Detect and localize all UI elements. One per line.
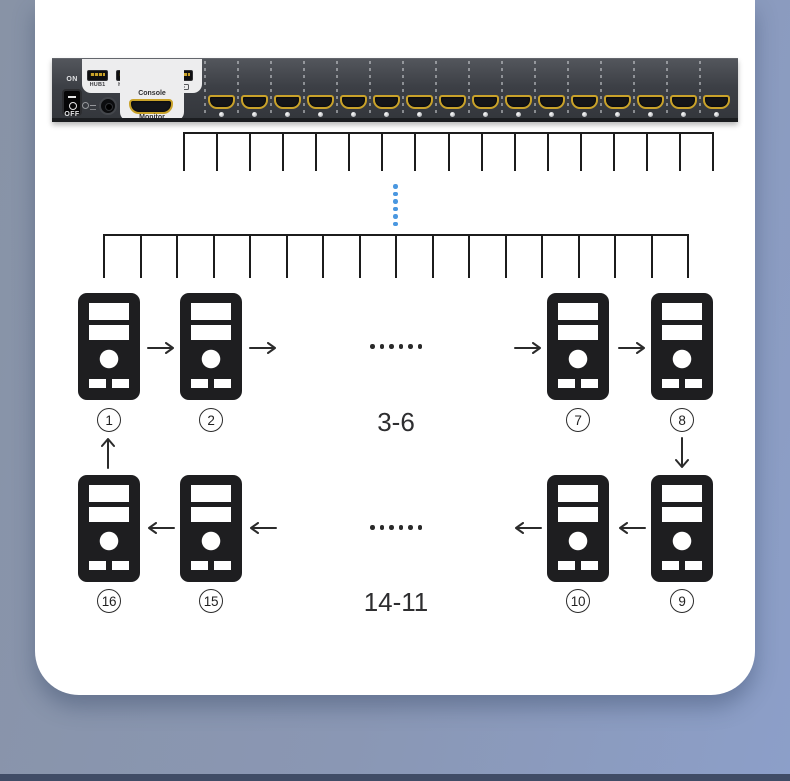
cable-line xyxy=(315,134,317,171)
hdmi-port-2 xyxy=(241,95,268,109)
cable-line xyxy=(468,236,470,278)
link-dot xyxy=(393,192,398,197)
port-led-6 xyxy=(384,112,389,117)
computer-tower-icon-16 xyxy=(78,475,140,582)
cable-line xyxy=(547,134,549,171)
port-separator xyxy=(402,61,404,117)
page: ON OFF HUB1 HUB2 Console Monitor 1 2 7 8 xyxy=(0,0,790,781)
port-separator xyxy=(237,61,239,117)
port-led-9 xyxy=(483,112,488,117)
port-separator xyxy=(534,61,536,117)
cable-line xyxy=(448,134,450,171)
ellipsis-dot xyxy=(399,344,404,349)
cable-line xyxy=(679,134,681,171)
ellipsis-dot xyxy=(418,525,423,530)
port-led-1 xyxy=(219,112,224,117)
port-separator xyxy=(336,61,338,117)
hdmi-port-7 xyxy=(406,95,433,109)
cable-line xyxy=(348,134,350,171)
port-led-4 xyxy=(318,112,323,117)
port-separator xyxy=(633,61,635,117)
port-led-16 xyxy=(714,112,719,117)
ellipsis-top-icon xyxy=(370,344,422,349)
port-separator xyxy=(270,61,272,117)
usb-port-hub1 xyxy=(87,70,108,81)
cable-line xyxy=(103,236,105,278)
computer-number-1: 1 xyxy=(97,408,121,432)
cable-line xyxy=(381,134,383,171)
computer-tower-icon-15 xyxy=(180,475,242,582)
cable-line xyxy=(216,134,218,171)
cable-line xyxy=(481,134,483,171)
hdmi-port-11 xyxy=(538,95,565,109)
computer-number-2: 2 xyxy=(199,408,223,432)
port-separator xyxy=(600,61,602,117)
hdmi-port-3 xyxy=(274,95,301,109)
console-label: Console xyxy=(120,90,184,97)
cable-line xyxy=(646,134,648,171)
port-separator xyxy=(369,61,371,117)
cable-line xyxy=(613,134,615,171)
link-dot xyxy=(393,214,398,219)
ellipsis-dot xyxy=(370,525,375,530)
hdmi-port-8 xyxy=(439,95,466,109)
hdmi-port-14 xyxy=(637,95,664,109)
footer-strip xyxy=(0,774,790,781)
power-off-label: OFF xyxy=(56,111,88,118)
cable-line xyxy=(414,134,416,171)
console-monitor-panel: Console Monitor xyxy=(120,59,184,121)
hdmi-port-13 xyxy=(604,95,631,109)
cable-bundle-top xyxy=(183,132,714,171)
computer-tower-icon-10 xyxy=(547,475,609,582)
hdmi-port-1 xyxy=(208,95,235,109)
arrow-right-icon xyxy=(514,342,542,354)
port-separator xyxy=(303,61,305,117)
hdmi-port-15 xyxy=(670,95,697,109)
computer-number-10: 10 xyxy=(566,589,590,613)
console-hdmi-port xyxy=(129,99,173,114)
ellipsis-dot xyxy=(380,344,385,349)
computer-number-7: 7 xyxy=(566,408,590,432)
cable-line xyxy=(432,236,434,278)
port-led-10 xyxy=(516,112,521,117)
ellipsis-dot xyxy=(389,525,394,530)
arrow-left-icon xyxy=(147,522,175,534)
cable-line xyxy=(578,236,580,278)
computer-number-16: 16 xyxy=(97,589,121,613)
arrow-left-icon xyxy=(618,522,646,534)
port-separator xyxy=(435,61,437,117)
cable-line xyxy=(687,236,689,278)
power-polarity-icon xyxy=(82,99,96,111)
port-led-15 xyxy=(681,112,686,117)
ellipsis-dot xyxy=(370,344,375,349)
port-led-14 xyxy=(648,112,653,117)
cable-bundle-bottom xyxy=(103,234,689,278)
arrow-up-icon xyxy=(101,437,115,469)
arrow-right-icon xyxy=(147,342,175,354)
port-separator xyxy=(699,61,701,117)
arrow-left-icon xyxy=(249,522,277,534)
usb-hub1-label: HUB1 xyxy=(84,82,111,88)
ellipsis-dot xyxy=(389,344,394,349)
port-separator xyxy=(501,61,503,117)
computer-number-9: 9 xyxy=(670,589,694,613)
computer-number-8: 8 xyxy=(670,408,694,432)
arrow-right-icon xyxy=(618,342,646,354)
hdmi-port-6 xyxy=(373,95,400,109)
port-separator xyxy=(468,61,470,117)
port-separator xyxy=(567,61,569,117)
link-dot xyxy=(393,207,398,212)
port-separator xyxy=(204,61,206,117)
cable-line xyxy=(580,134,582,171)
cable-line xyxy=(395,236,397,278)
cable-line xyxy=(541,236,543,278)
cable-line xyxy=(514,134,516,171)
hdmi-port-12 xyxy=(571,95,598,109)
arrow-left-icon xyxy=(514,522,542,534)
ellipsis-dot xyxy=(408,344,413,349)
top-range-label: 3-6 xyxy=(336,407,456,438)
port-led-7 xyxy=(417,112,422,117)
hdmi-port-10 xyxy=(505,95,532,109)
dc-power-jack xyxy=(99,97,117,115)
port-separator xyxy=(666,61,668,117)
cable-line xyxy=(282,134,284,171)
cable-line xyxy=(359,236,361,278)
port-led-8 xyxy=(450,112,455,117)
port-led-13 xyxy=(615,112,620,117)
link-dot xyxy=(393,222,398,227)
port-led-12 xyxy=(582,112,587,117)
port-led-2 xyxy=(252,112,257,117)
ellipsis-dot xyxy=(418,344,423,349)
hdmi-port-16 xyxy=(703,95,730,109)
cable-line xyxy=(176,236,178,278)
kvm-switch-rear-panel: ON OFF HUB1 HUB2 Console Monitor xyxy=(52,58,738,122)
computer-tower-icon-9 xyxy=(651,475,713,582)
computer-tower-icon-2 xyxy=(180,293,242,400)
cable-line xyxy=(322,236,324,278)
computer-tower-icon-8 xyxy=(651,293,713,400)
cable-line xyxy=(712,134,714,171)
port-led-3 xyxy=(285,112,290,117)
computer-number-15: 15 xyxy=(199,589,223,613)
cable-line xyxy=(183,134,185,171)
port-led-5 xyxy=(351,112,356,117)
ellipsis-dot xyxy=(380,525,385,530)
ellipsis-dot xyxy=(399,525,404,530)
hdmi-port-5 xyxy=(340,95,367,109)
cable-line xyxy=(249,134,251,171)
bottom-range-label: 14-11 xyxy=(336,587,456,618)
link-dot xyxy=(393,184,398,189)
hdmi-port-4 xyxy=(307,95,334,109)
hdmi-port-9 xyxy=(472,95,499,109)
cable-line xyxy=(614,236,616,278)
arrow-down-icon xyxy=(675,437,689,469)
panel-bottom-edge xyxy=(52,118,738,122)
cable-line xyxy=(286,236,288,278)
cable-line xyxy=(651,236,653,278)
arrow-right-icon xyxy=(249,342,277,354)
cable-line xyxy=(505,236,507,278)
dotted-link-icon xyxy=(393,184,398,226)
ellipsis-dot xyxy=(408,525,413,530)
link-dot xyxy=(393,199,398,204)
cable-line xyxy=(213,236,215,278)
cable-line xyxy=(140,236,142,278)
computer-tower-icon-7 xyxy=(547,293,609,400)
ellipsis-bottom-icon xyxy=(370,525,422,530)
computer-tower-icon-1 xyxy=(78,293,140,400)
port-led-11 xyxy=(549,112,554,117)
cable-line xyxy=(249,236,251,278)
